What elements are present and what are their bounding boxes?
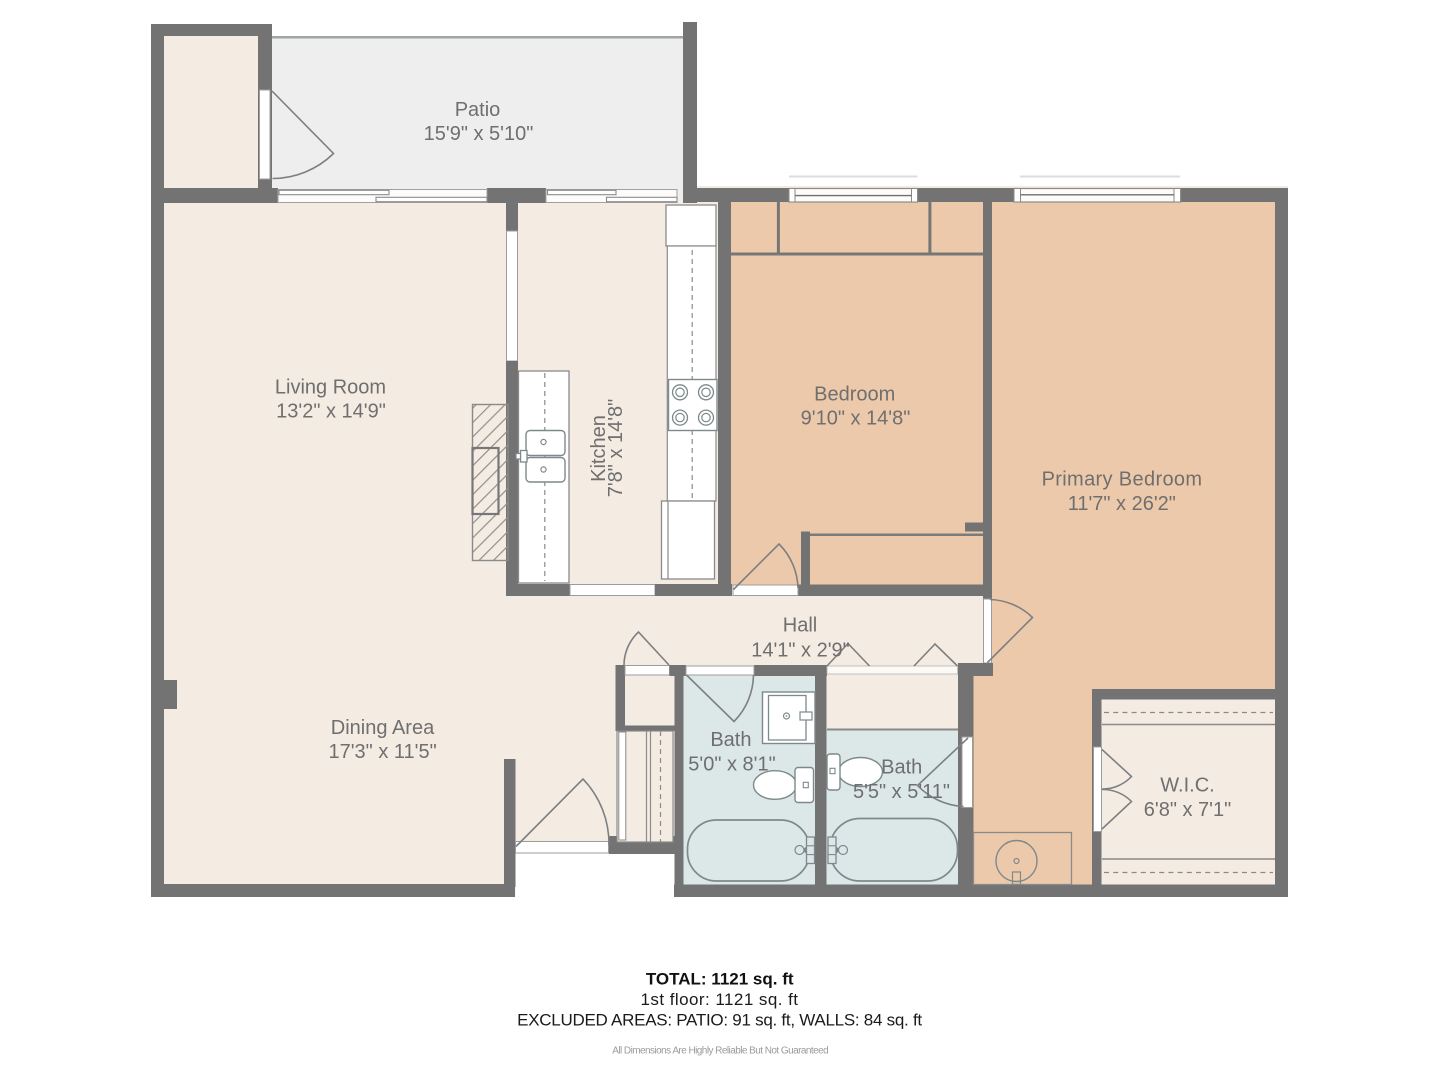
svg-text:Bedroom: Bedroom <box>814 383 895 405</box>
svg-text:11'7" x 26'2": 11'7" x 26'2" <box>1068 493 1176 515</box>
svg-text:All Dimensions Are Highly Reli: All Dimensions Are Highly Reliable But N… <box>612 1046 828 1057</box>
svg-text:9'10" x 14'8": 9'10" x 14'8" <box>801 408 911 430</box>
svg-text:Dining Area: Dining Area <box>331 717 435 739</box>
svg-text:15'9" x 5'10": 15'9" x 5'10" <box>424 123 534 145</box>
svg-text:7'8" x 14'8": 7'8" x 14'8" <box>605 399 627 498</box>
svg-text:5'0" x 8'1": 5'0" x 8'1" <box>688 753 775 775</box>
svg-text:13'2" x 14'9": 13'2" x 14'9" <box>276 401 386 423</box>
svg-text:Primary Bedroom: Primary Bedroom <box>1042 468 1203 490</box>
svg-text:Bath: Bath <box>710 729 751 751</box>
svg-text:5'5" x 5'11": 5'5" x 5'11" <box>853 781 950 803</box>
svg-text:6'8" x 7'1": 6'8" x 7'1" <box>1144 799 1231 821</box>
svg-text:Living Room: Living Room <box>275 377 386 399</box>
svg-text:1st floor: 1121 sq. ft: 1st floor: 1121 sq. ft <box>641 990 799 1009</box>
svg-text:Hall: Hall <box>783 615 817 637</box>
svg-text:EXCLUDED AREAS: PATIO: 91 sq.: EXCLUDED AREAS: PATIO: 91 sq. ft, WALLS:… <box>517 1011 922 1030</box>
svg-text:W.I.C.: W.I.C. <box>1160 774 1214 796</box>
svg-text:17'3" x 11'5": 17'3" x 11'5" <box>328 741 436 763</box>
svg-text:Patio: Patio <box>455 99 501 121</box>
svg-text:Bath: Bath <box>881 756 922 778</box>
svg-text:14'1" x 2'9": 14'1" x 2'9" <box>751 639 850 661</box>
svg-text:TOTAL: 1121 sq. ft: TOTAL: 1121 sq. ft <box>646 969 794 988</box>
